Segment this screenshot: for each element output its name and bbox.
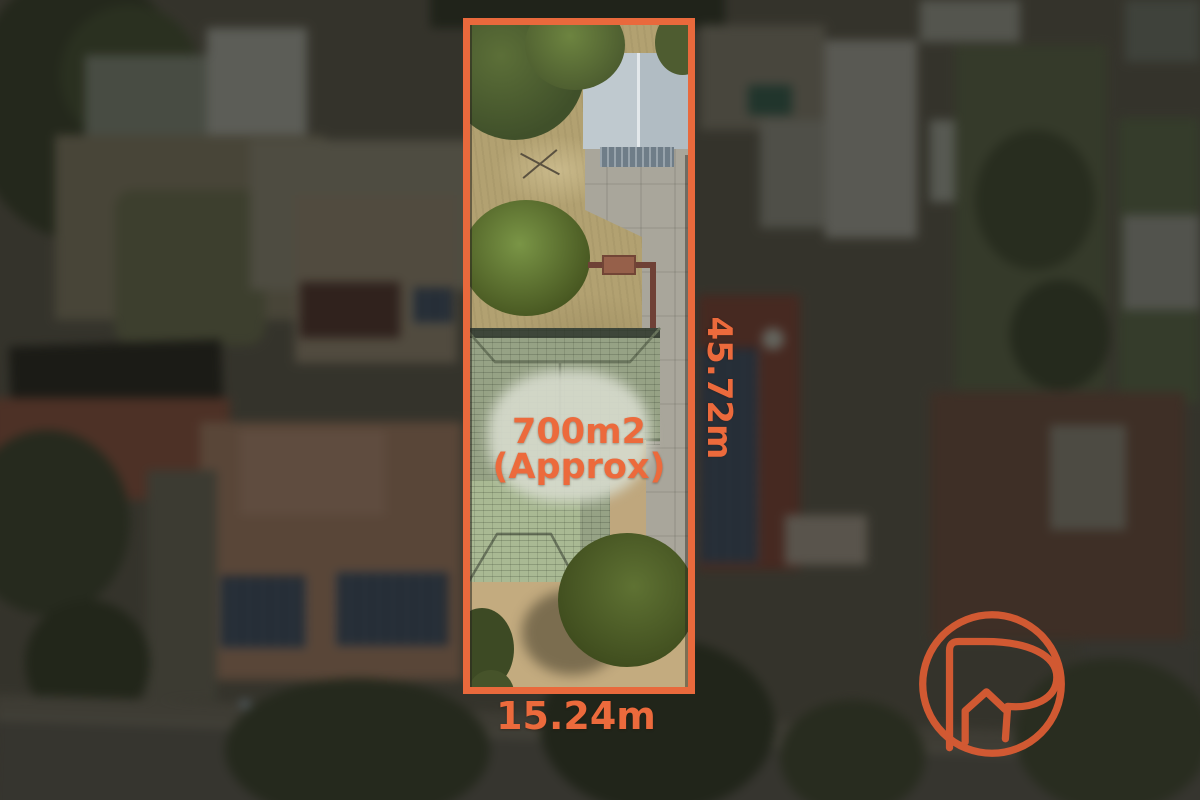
area-approx: (Approx) — [492, 450, 665, 485]
p-roofline-circle-icon — [916, 608, 1068, 760]
logo-roofline-stroke — [965, 692, 1005, 742]
property-boundary — [463, 18, 695, 694]
frontage-dimension-label: 15.24m — [496, 694, 656, 738]
area-value: 700m2 — [492, 415, 665, 450]
logo-circle — [923, 615, 1062, 754]
aerial-property-photo: 700m2 (Approx) 45.72m 15.24m — [0, 0, 1200, 800]
area-label: 700m2 (Approx) — [492, 415, 665, 485]
depth-dimension-label: 45.72m — [699, 317, 739, 460]
